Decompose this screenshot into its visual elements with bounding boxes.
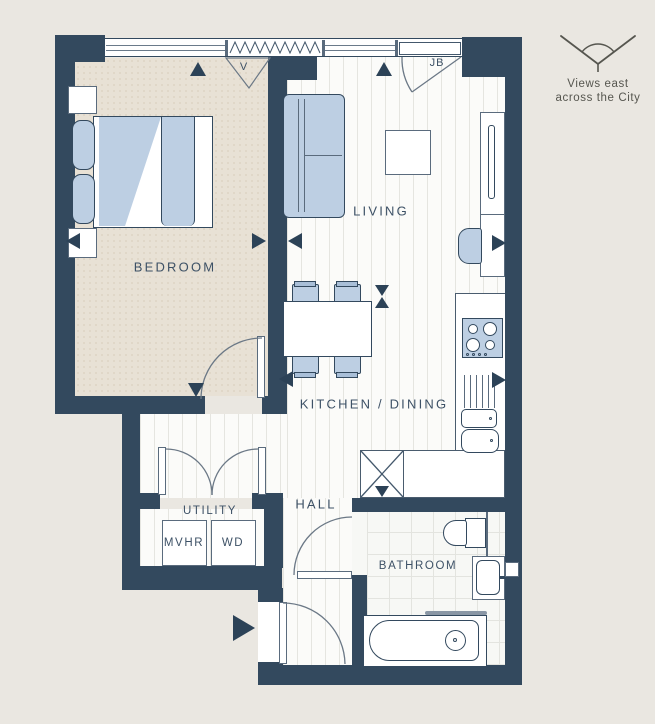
basin-unit (472, 556, 505, 600)
window-mullion (225, 40, 228, 56)
dimension-arrow-down (375, 486, 389, 497)
entrance-door-leaf (279, 602, 287, 664)
sofa-back-line (298, 99, 299, 212)
utility-door-leaf-left (158, 447, 166, 495)
hob-knob (484, 353, 487, 356)
vent-label: V (240, 61, 248, 73)
dining-table (283, 301, 372, 357)
sofa (283, 94, 345, 218)
dimension-arrow-right (492, 372, 506, 388)
tv (488, 125, 495, 199)
wall-partition-pier (268, 57, 317, 80)
bedroom-door-leaf (257, 336, 265, 398)
sink-drainer-tray (461, 409, 497, 428)
dimension-arrow-down (188, 383, 204, 397)
dining-chair (334, 355, 361, 374)
bathtub (363, 615, 487, 667)
toilet-cistern (465, 518, 486, 548)
chair-back (336, 372, 358, 378)
basin (476, 560, 500, 595)
sofa-cushion-divider (304, 155, 342, 156)
hall-label: HALL (295, 497, 336, 512)
bedside-table-top (68, 86, 97, 114)
dimension-arrow-right (492, 235, 506, 251)
bathroom-door-threshold (352, 512, 367, 575)
media-unit (480, 112, 505, 277)
chair-back (294, 281, 316, 287)
bathroom-label: BATHROOM (379, 560, 457, 572)
hob-knob (478, 353, 481, 356)
kitchen-dining-label: KITCHEN / DINING (300, 397, 449, 412)
dimension-arrow-left (66, 233, 80, 249)
mvhr-label: MVHR (164, 537, 204, 549)
drainer-line (482, 375, 483, 408)
coffee-table (385, 130, 431, 175)
tap-dot (490, 439, 493, 442)
dimension-arrow-left (288, 233, 302, 249)
wall-bedroom-bottom (55, 396, 205, 414)
bed (93, 116, 213, 228)
bed-duvet-left (99, 117, 161, 226)
wall-utility-stub-left (140, 493, 160, 509)
dimension-arrow-up (376, 62, 392, 76)
shower-screen (425, 611, 487, 615)
wall-niche (505, 562, 519, 577)
toilet-bowl (443, 520, 467, 546)
burner (485, 340, 495, 350)
pillow (72, 174, 95, 224)
utility-label: UTILITY (183, 505, 237, 517)
drainer-line (464, 375, 465, 408)
bathroom-door-leaf (297, 571, 352, 579)
hall-floor-lower (283, 498, 352, 665)
sink-basin (461, 429, 499, 453)
burner (468, 324, 478, 334)
view-direction-icon (561, 36, 635, 72)
wall-bedroom-door-stub (262, 396, 287, 414)
wd-label: WD (222, 537, 244, 549)
window-mullion (322, 40, 325, 56)
juliet-balcony-window (399, 42, 461, 55)
wall-right (505, 37, 522, 685)
desk-chair (458, 228, 482, 264)
living-label: LIVING (353, 204, 409, 219)
floor-plan: BEDROOM LIVING KITCHEN / DINING HALL UTI… (0, 0, 655, 724)
view-note-line1: Views east (567, 78, 628, 90)
drainer-line (488, 375, 489, 408)
dimension-arrow-right (252, 233, 266, 249)
vent-panel (228, 39, 322, 55)
chair-back (294, 372, 316, 378)
drainer-line (470, 375, 471, 408)
cistern-panel-line (486, 512, 488, 557)
window-mullion (395, 40, 398, 56)
bedroom-label: BEDROOM (134, 260, 217, 275)
tap-dot (489, 417, 492, 420)
dimension-arrow-down (375, 285, 389, 296)
drainer-line (476, 375, 477, 408)
hob-knob (472, 353, 475, 356)
view-note-line2: across the City (555, 92, 640, 104)
dining-chair (292, 355, 319, 374)
wall-entrance-jamb-top (258, 588, 283, 602)
hob-knob (466, 353, 469, 356)
dimension-arrow-left (279, 371, 293, 387)
dimension-arrow-up (190, 62, 206, 76)
bed-duvet-right (161, 117, 195, 226)
wall-utility-stub-right (252, 493, 283, 509)
utility-door-leaf-right (258, 447, 266, 495)
wall-utility-bottom (122, 566, 282, 590)
entrance-arrow-icon (233, 615, 255, 641)
wall-bottom (258, 665, 522, 685)
dimension-arrow-up (375, 297, 389, 308)
burner (483, 322, 497, 336)
juliet-balcony-label: JB (430, 57, 445, 69)
wall-bathroom-top (352, 498, 512, 512)
bath-drain-dot (453, 638, 457, 642)
pillow (72, 120, 95, 170)
unit-divider (481, 214, 505, 215)
chair-back (336, 281, 358, 287)
hob (462, 318, 503, 358)
wall-utility-left (122, 414, 140, 590)
burner (466, 338, 480, 352)
